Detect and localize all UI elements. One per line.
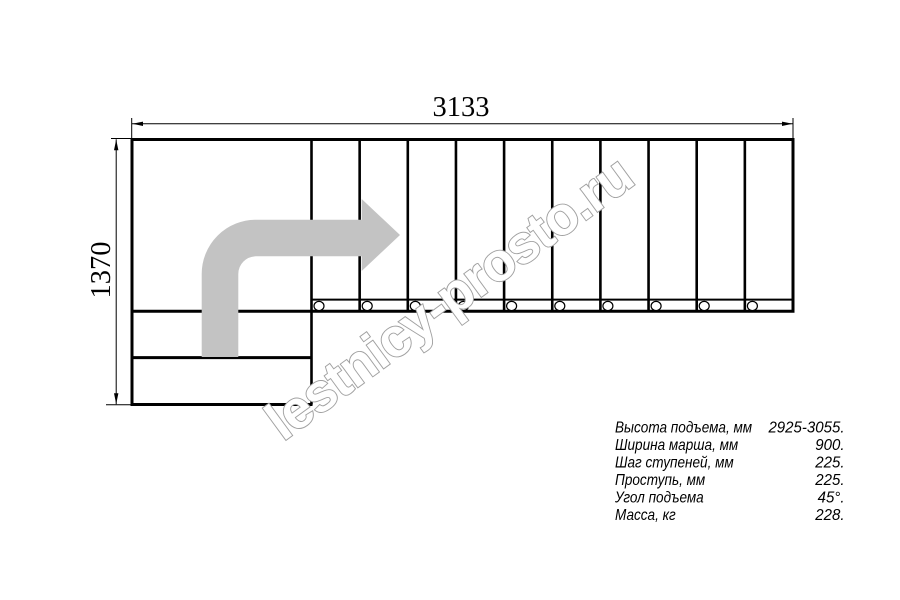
svg-text:Высота подъема, мм: Высота подъема, мм [615, 420, 752, 437]
svg-text:3133: 3133 [433, 92, 490, 123]
svg-text:225.: 225. [814, 472, 844, 490]
svg-text:Проступь, мм: Проступь, мм [615, 472, 705, 489]
svg-text:Угол подъема: Угол подъема [614, 490, 704, 507]
svg-text:Шаг ступеней, мм: Шаг ступеней, мм [615, 454, 734, 471]
svg-text:45°.: 45°. [818, 489, 845, 507]
svg-text:900.: 900. [815, 437, 844, 455]
svg-text:Масса, кг: Масса, кг [615, 507, 676, 524]
svg-text:1370: 1370 [86, 242, 117, 299]
svg-text:Ширина марша, мм: Ширина марша, мм [615, 437, 738, 454]
svg-text:228.: 228. [814, 506, 844, 524]
svg-text:2925-3055.: 2925-3055. [767, 419, 844, 437]
svg-text:225.: 225. [814, 454, 844, 472]
